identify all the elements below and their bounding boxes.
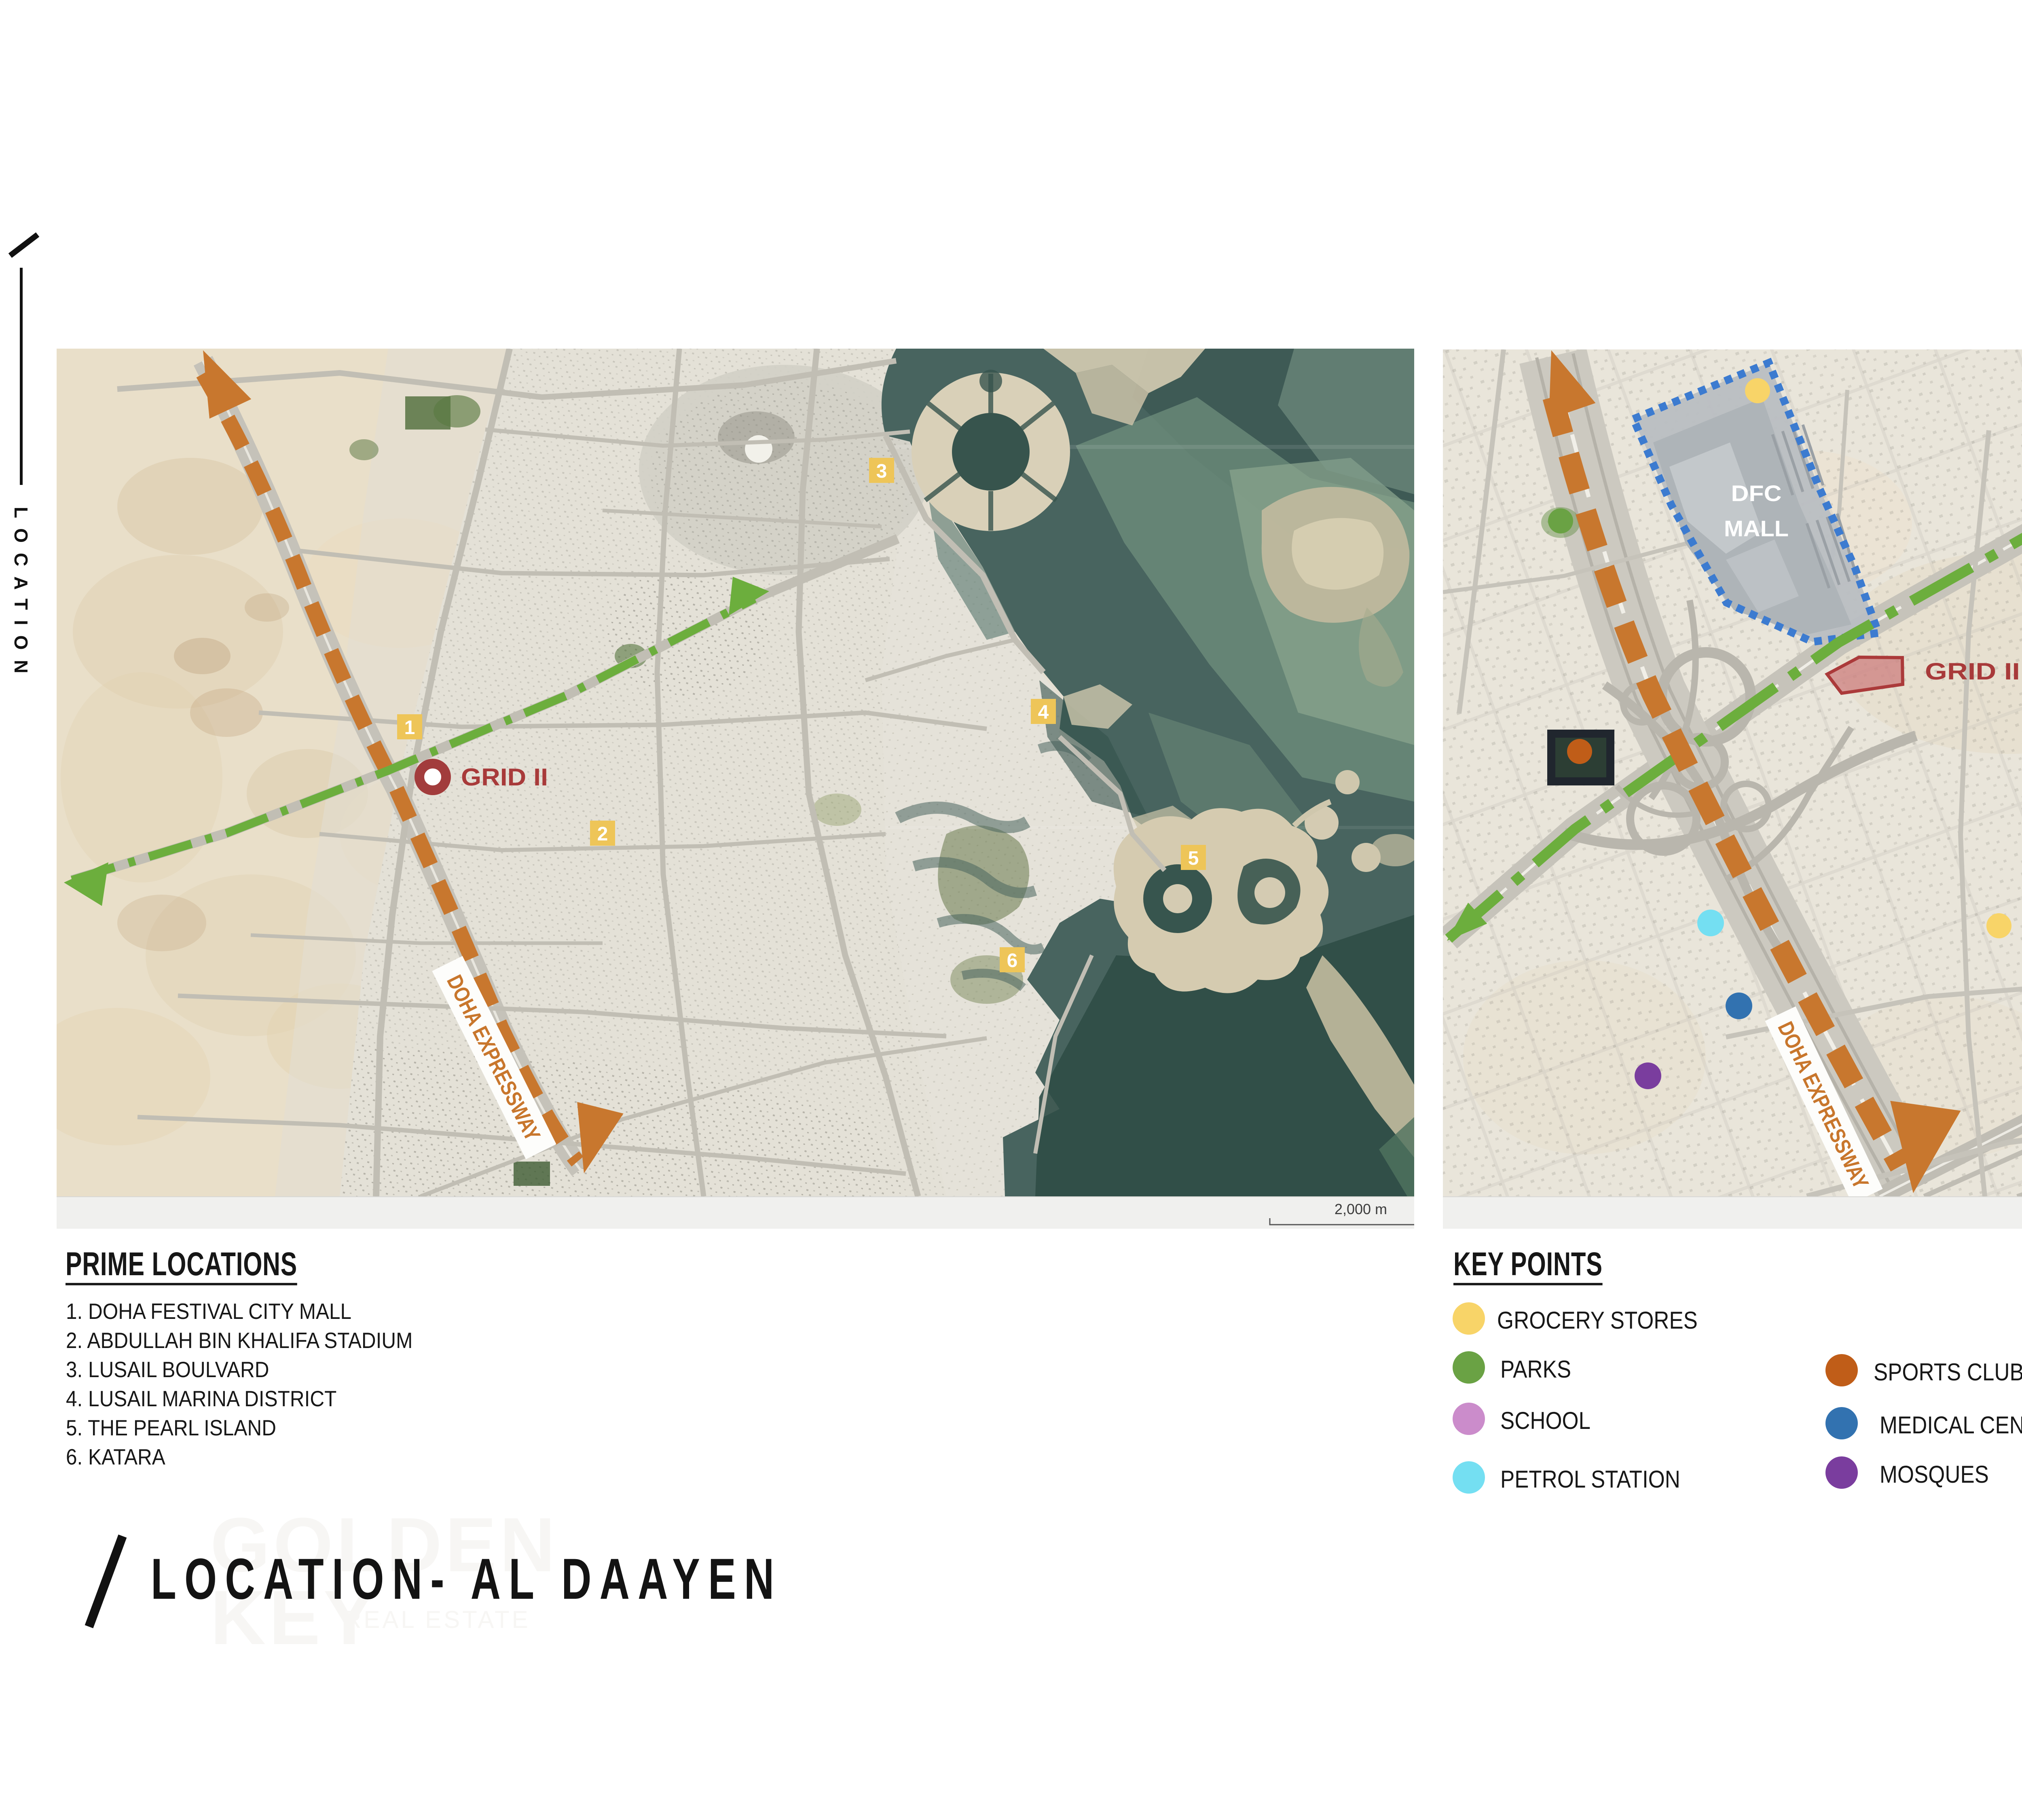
svg-text:DFC: DFC	[1731, 480, 1782, 506]
svg-text:4: 4	[1038, 702, 1049, 723]
svg-text:GRID II: GRID II	[461, 764, 548, 791]
svg-text:GRID II: GRID II	[1925, 658, 2020, 685]
svg-text:6: 6	[1007, 950, 1018, 971]
svg-text:MALL: MALL	[1724, 516, 1789, 541]
svg-text:3: 3	[876, 461, 887, 482]
svg-text:5: 5	[1188, 848, 1199, 869]
svg-text:2: 2	[597, 823, 608, 845]
svg-text:1: 1	[404, 717, 415, 739]
svg-text:2,000 m: 2,000 m	[1335, 1201, 1387, 1217]
